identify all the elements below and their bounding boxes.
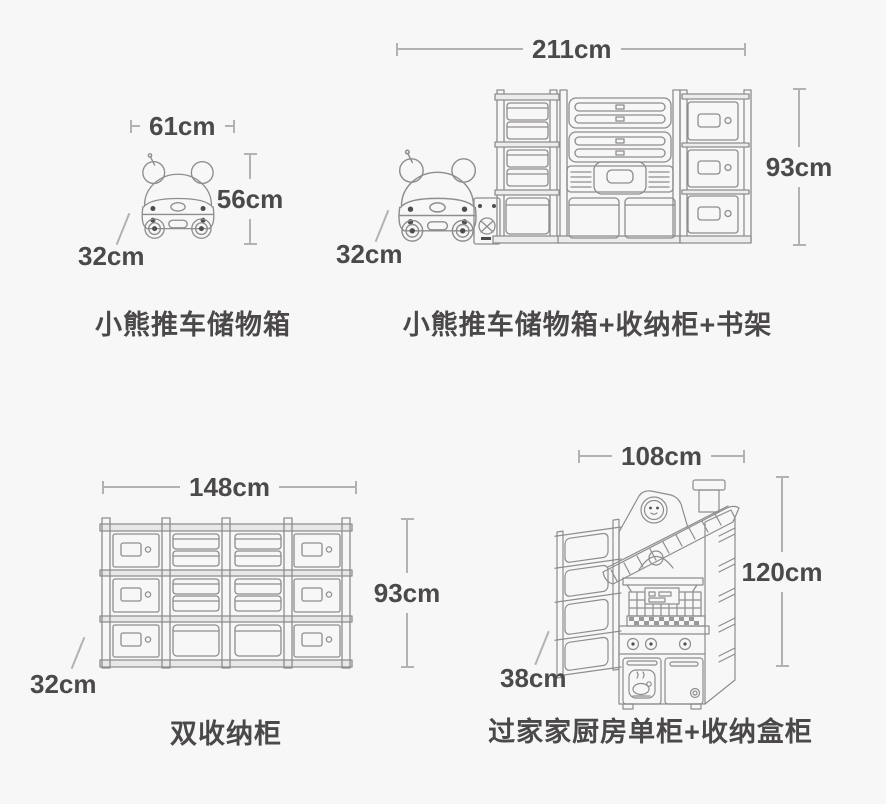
p3-height-value: 93cm: [374, 580, 441, 606]
product-dimension-sheet: 61cm: [0, 0, 886, 804]
p1-label: 小熊推车储物箱: [95, 303, 290, 342]
dim-tick: [355, 481, 357, 494]
bin-rack-part: [493, 90, 561, 243]
gable-sign-part: [619, 491, 688, 532]
dim-line: [398, 48, 523, 50]
dim-line: [249, 219, 251, 243]
chimney-part: [693, 480, 725, 512]
p3-depth-tick: [71, 637, 86, 669]
p4-height-dimension: 120cm: [744, 476, 820, 667]
bin-column-left: [173, 534, 219, 656]
bear-cart-part: [399, 150, 476, 241]
dim-line: [580, 455, 612, 457]
dim-line: [798, 90, 800, 147]
dim-line: [798, 187, 800, 244]
p4-label: 过家家厨房单柜+收纳盒柜: [458, 710, 843, 749]
double-cabinet-drawing: [100, 518, 352, 668]
bear-cart-drawing: [132, 148, 224, 244]
dim-tick: [244, 243, 257, 245]
dim-tick: [776, 665, 789, 667]
p2-height-value: 93cm: [766, 154, 833, 180]
p2-height-dimension: 93cm: [763, 88, 835, 246]
p2-label: 小熊推车储物箱+收纳柜+书架: [400, 303, 775, 342]
p3-width-value: 148cm: [189, 474, 270, 500]
dim-line: [711, 455, 743, 457]
p2-depth-value: 32cm: [336, 241, 403, 267]
side-panel-part: [705, 510, 735, 704]
p4-depth-value: 38cm: [500, 665, 567, 691]
p4-height-value: 120cm: [742, 559, 823, 585]
p3-label: 双收纳柜: [126, 712, 326, 751]
p3-width-dimension: 148cm: [102, 474, 357, 500]
dim-tick: [401, 666, 414, 668]
p1-depth-value: 32cm: [78, 243, 145, 269]
dim-tick: [743, 450, 745, 463]
door-cabinet-part: [680, 90, 751, 243]
p3-height-dimension: 93cm: [371, 518, 443, 668]
bear-cart-combo-drawing: [388, 86, 756, 246]
dim-line: [406, 520, 408, 573]
dim-line: [249, 155, 251, 179]
door-column-right: [294, 534, 340, 657]
p4-width-dimension: 108cm: [578, 443, 745, 469]
dim-line: [406, 613, 408, 666]
dim-line: [279, 486, 355, 488]
kitchen-body-part: [619, 522, 709, 709]
p1-height-dimension: 56cm: [213, 153, 287, 245]
dim-tick: [793, 244, 806, 246]
dim-line: [132, 125, 140, 127]
p2-width-value: 211cm: [532, 36, 612, 62]
storage-box-rack-part: [555, 519, 621, 678]
p1-width-dimension: 61cm: [130, 113, 235, 139]
dim-line: [781, 592, 783, 666]
dim-line: [621, 48, 744, 50]
p4-width-value: 108cm: [621, 443, 702, 469]
p1-width-value: 61cm: [149, 113, 216, 139]
dim-tick: [233, 120, 235, 133]
dim-tick: [744, 43, 746, 56]
bookshelf-part: [558, 90, 682, 243]
p1-height-value: 56cm: [217, 186, 284, 212]
dim-line: [225, 125, 233, 127]
dim-line: [104, 486, 180, 488]
door-column-left: [113, 534, 159, 657]
p3-depth-value: 32cm: [30, 671, 97, 697]
play-kitchen-drawing: [545, 478, 743, 712]
bin-column-right: [235, 534, 281, 656]
p2-width-dimension: 211cm: [396, 36, 746, 62]
dim-line: [781, 478, 783, 552]
